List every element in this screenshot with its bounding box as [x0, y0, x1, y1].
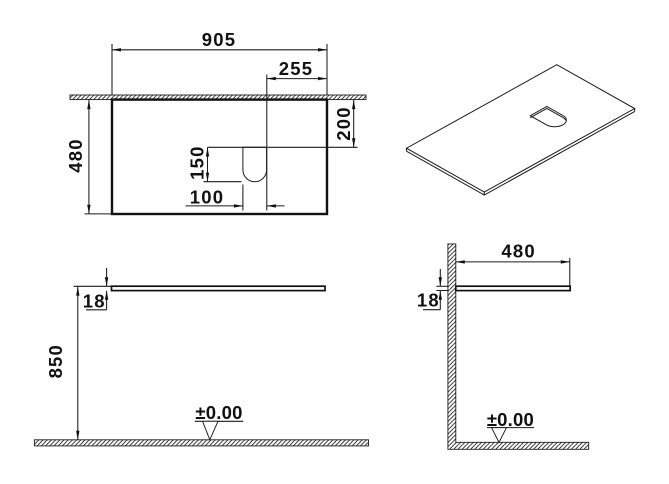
svg-text:200: 200	[333, 106, 354, 140]
svg-text:±0.00: ±0.00	[195, 402, 242, 423]
svg-text:18: 18	[417, 290, 440, 311]
svg-text:255: 255	[279, 58, 313, 79]
svg-text:850: 850	[45, 344, 66, 378]
svg-text:480: 480	[65, 138, 86, 172]
svg-text:100: 100	[190, 186, 224, 207]
svg-text:480: 480	[501, 240, 535, 261]
svg-text:±0.00: ±0.00	[487, 409, 534, 430]
svg-text:905: 905	[202, 29, 236, 50]
svg-text:18: 18	[83, 290, 106, 311]
svg-text:150: 150	[186, 145, 207, 179]
